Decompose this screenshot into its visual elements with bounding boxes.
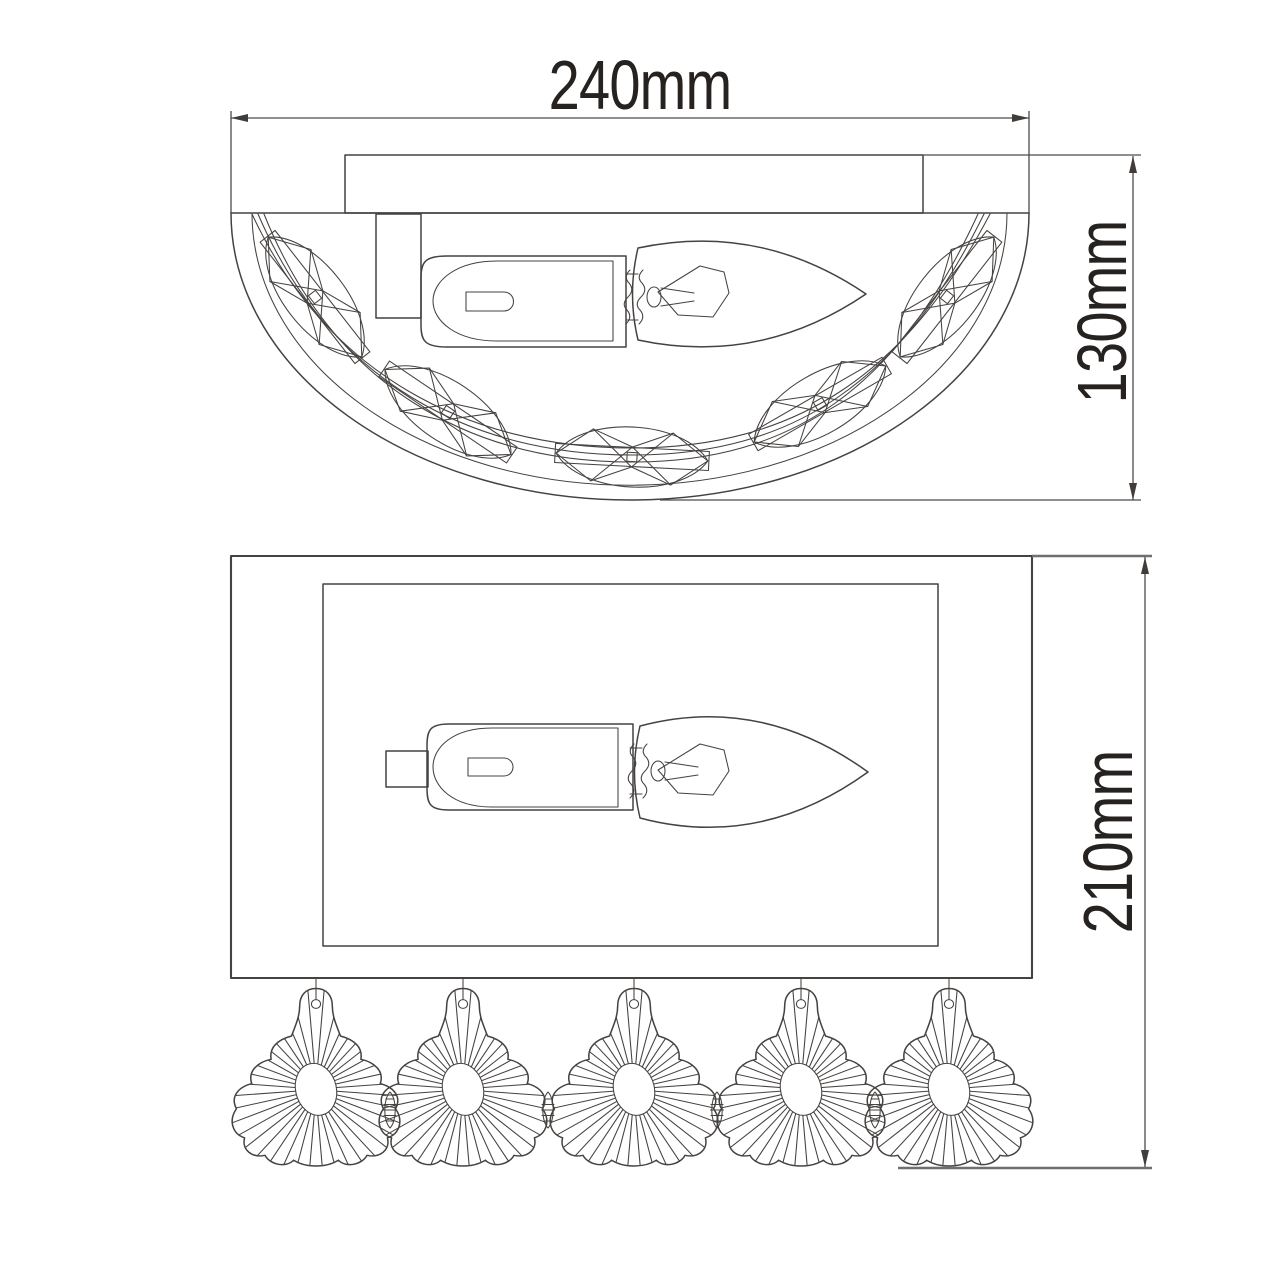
pendant-4 [674,968,928,1210]
pendant-overlap [869,1092,882,1128]
arrowhead-down-icon [1141,1150,1149,1167]
arrowhead-up-icon [1141,557,1149,574]
socket-bracket-top [376,214,421,318]
top-view [231,111,1141,500]
pendant-1 [189,968,443,1210]
crystal-5 [876,218,1018,376]
dimension-width-lines [231,111,1029,213]
socket-body-top [433,261,613,341]
bulb-front [628,717,868,828]
socket-top [376,214,626,347]
socket-slot-front [468,758,513,776]
shade-front-outer [231,556,1032,978]
bulb-flame-top [658,266,729,317]
crystal-3 [554,423,711,491]
line-art [0,0,1280,1279]
dimension-height-label: 210mm [1073,746,1143,938]
crystal-1 [244,218,386,376]
socket-body-front [433,728,618,807]
dimension-depth-label: 130mm [1067,216,1137,408]
crystal-garland [244,214,1018,491]
mounting-plate-top [345,155,923,213]
pendant-5 [822,968,1076,1210]
dimension-width-label: 240mm [520,50,760,120]
pendant-row [189,968,1076,1210]
pendant-overlap [384,1092,397,1128]
bulb-glass-front [635,717,869,828]
socket-housing-front [427,724,633,810]
shade-front-inner [323,584,938,946]
pendant-3 [507,968,761,1210]
bulb-glass-top [633,241,867,347]
bulb-flame-front [658,744,729,795]
garland-wire [258,214,984,455]
arrowhead-up-icon [1129,156,1137,173]
front-view [189,556,1152,1210]
socket-housing-top [421,256,626,347]
technical-drawing: 240mm 130mm 210mm [0,0,1280,1279]
arrowhead-left-icon [231,114,248,122]
socket-slot-top [466,292,514,311]
arrowhead-down-icon [1129,483,1137,500]
bulb-top [624,241,866,347]
garland-wire [264,214,978,462]
socket-front [386,724,633,810]
garland-wire [252,214,990,448]
arrowhead-right-icon [1012,114,1029,122]
pendant-2 [336,968,590,1210]
filament-top [624,270,694,324]
socket-bracket-front [386,751,428,787]
